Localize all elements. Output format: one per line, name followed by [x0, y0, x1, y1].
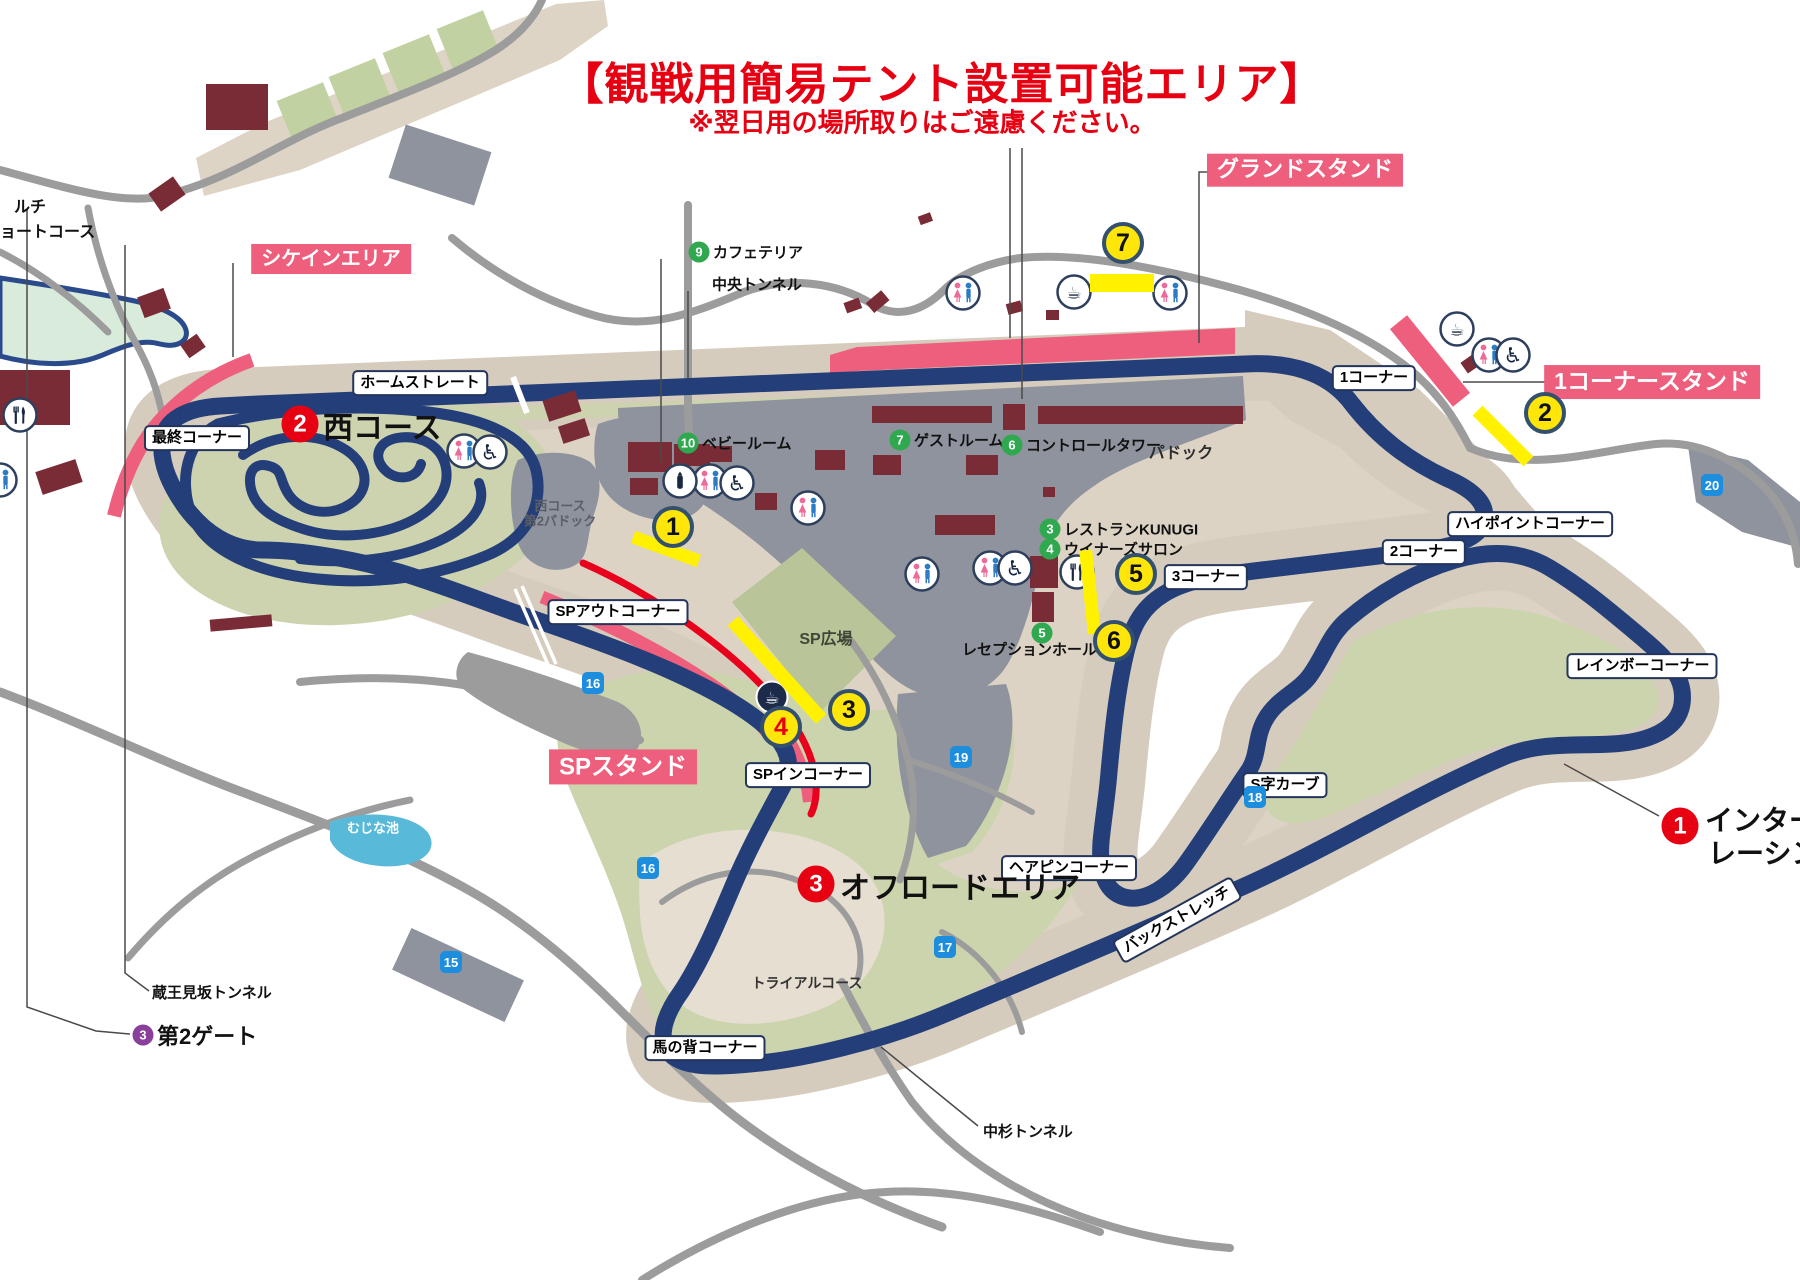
wheelchair-icon [721, 467, 754, 500]
parking-lot-southwest [392, 928, 524, 1022]
toilet-icon [906, 558, 939, 591]
parking-lot-northeast [1688, 446, 1800, 548]
wheelchair-icon [999, 552, 1032, 585]
circuit-map-page: ♿ ☕ ☕ [0, 0, 1800, 1280]
toilet-icon [1154, 277, 1187, 310]
circuit-map-svg: ♿ ☕ ☕ [0, 0, 1800, 1280]
toilet-icon [0, 464, 17, 497]
restaurant-icon [4, 399, 37, 432]
wheelchair-icon [474, 436, 507, 469]
wheelchair-icon [1497, 339, 1530, 372]
mujina-pond [330, 815, 432, 867]
parking-lot-top [389, 124, 492, 205]
coffee-icon [1058, 276, 1091, 309]
restaurant-icon [1061, 556, 1094, 589]
toilet-icon [792, 492, 825, 525]
toilet-icon [947, 277, 980, 310]
coffee-icon [1441, 313, 1474, 346]
coffee-dark-icon [757, 682, 788, 713]
bottle-icon [664, 465, 697, 498]
